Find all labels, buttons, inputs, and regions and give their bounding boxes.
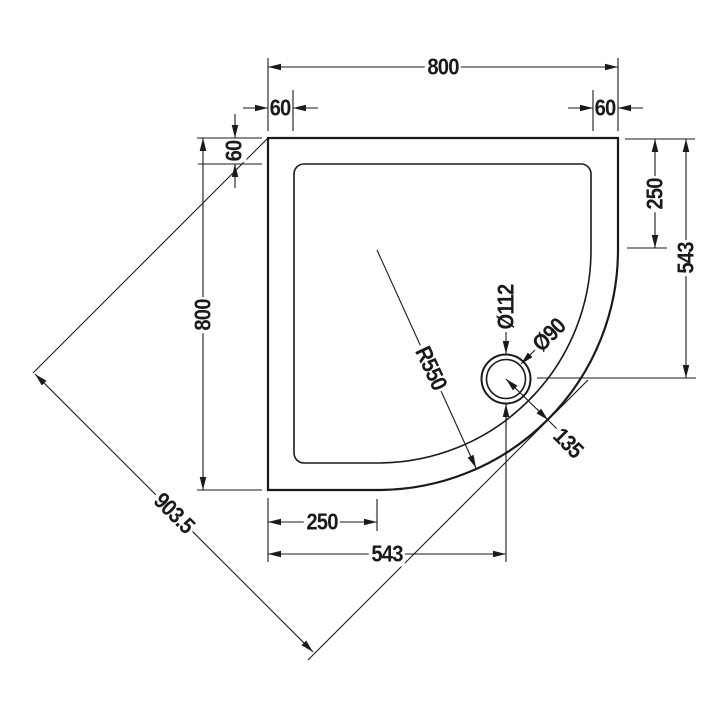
dim-label-side-inset: 60 (222, 140, 247, 163)
dim-label-top-width: 800 (425, 55, 461, 80)
dimension-lines-group (35, 67, 686, 652)
dim-label-left-height: 800 (191, 297, 216, 333)
dim-label-top-inset-right: 60 (594, 96, 617, 121)
extension-lines-group (33, 58, 696, 660)
technical-drawing-quadrant-shower-tray: 800 60 60 60 800 250 543 250 543 903.5 R… (0, 0, 720, 719)
dim-label-top-inset-left: 60 (269, 96, 292, 121)
dim-label-right-250: 250 (643, 176, 668, 212)
ext-diagonal-upper (33, 138, 268, 373)
dim-label-waste-outer: Ø112 (494, 282, 519, 332)
dim-label-bottom-250: 250 (304, 510, 340, 535)
dim-label-right-543: 543 (674, 240, 699, 276)
ext-diagonal-lower (308, 380, 588, 660)
dim-label-bottom-543: 543 (369, 542, 405, 567)
